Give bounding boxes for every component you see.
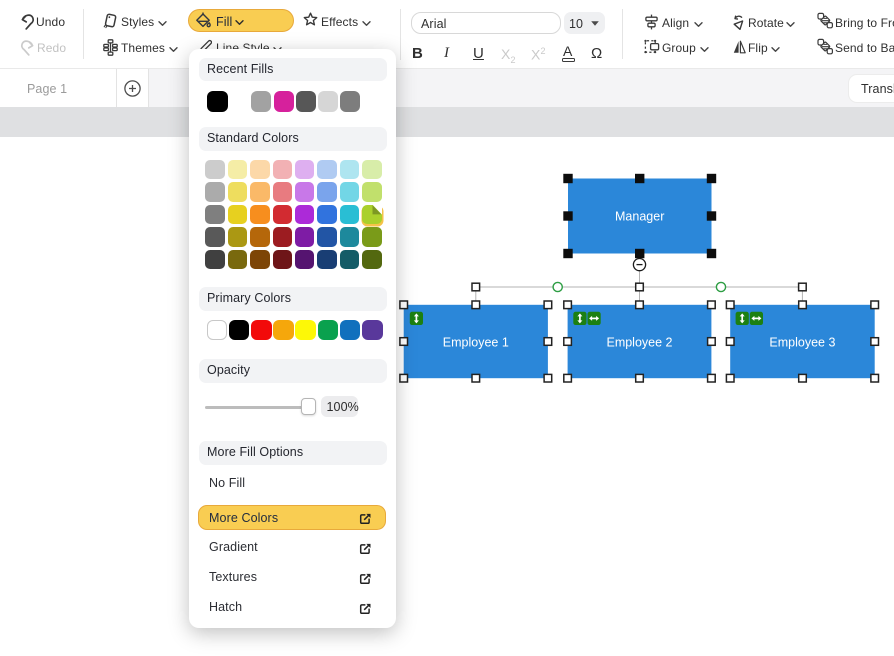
svg-text:Employee 2: Employee 2 <box>606 336 672 350</box>
svg-text:Employee 3: Employee 3 <box>769 336 835 350</box>
svg-text:Manager: Manager <box>615 210 664 224</box>
svg-text:Employee 1: Employee 1 <box>443 336 509 350</box>
